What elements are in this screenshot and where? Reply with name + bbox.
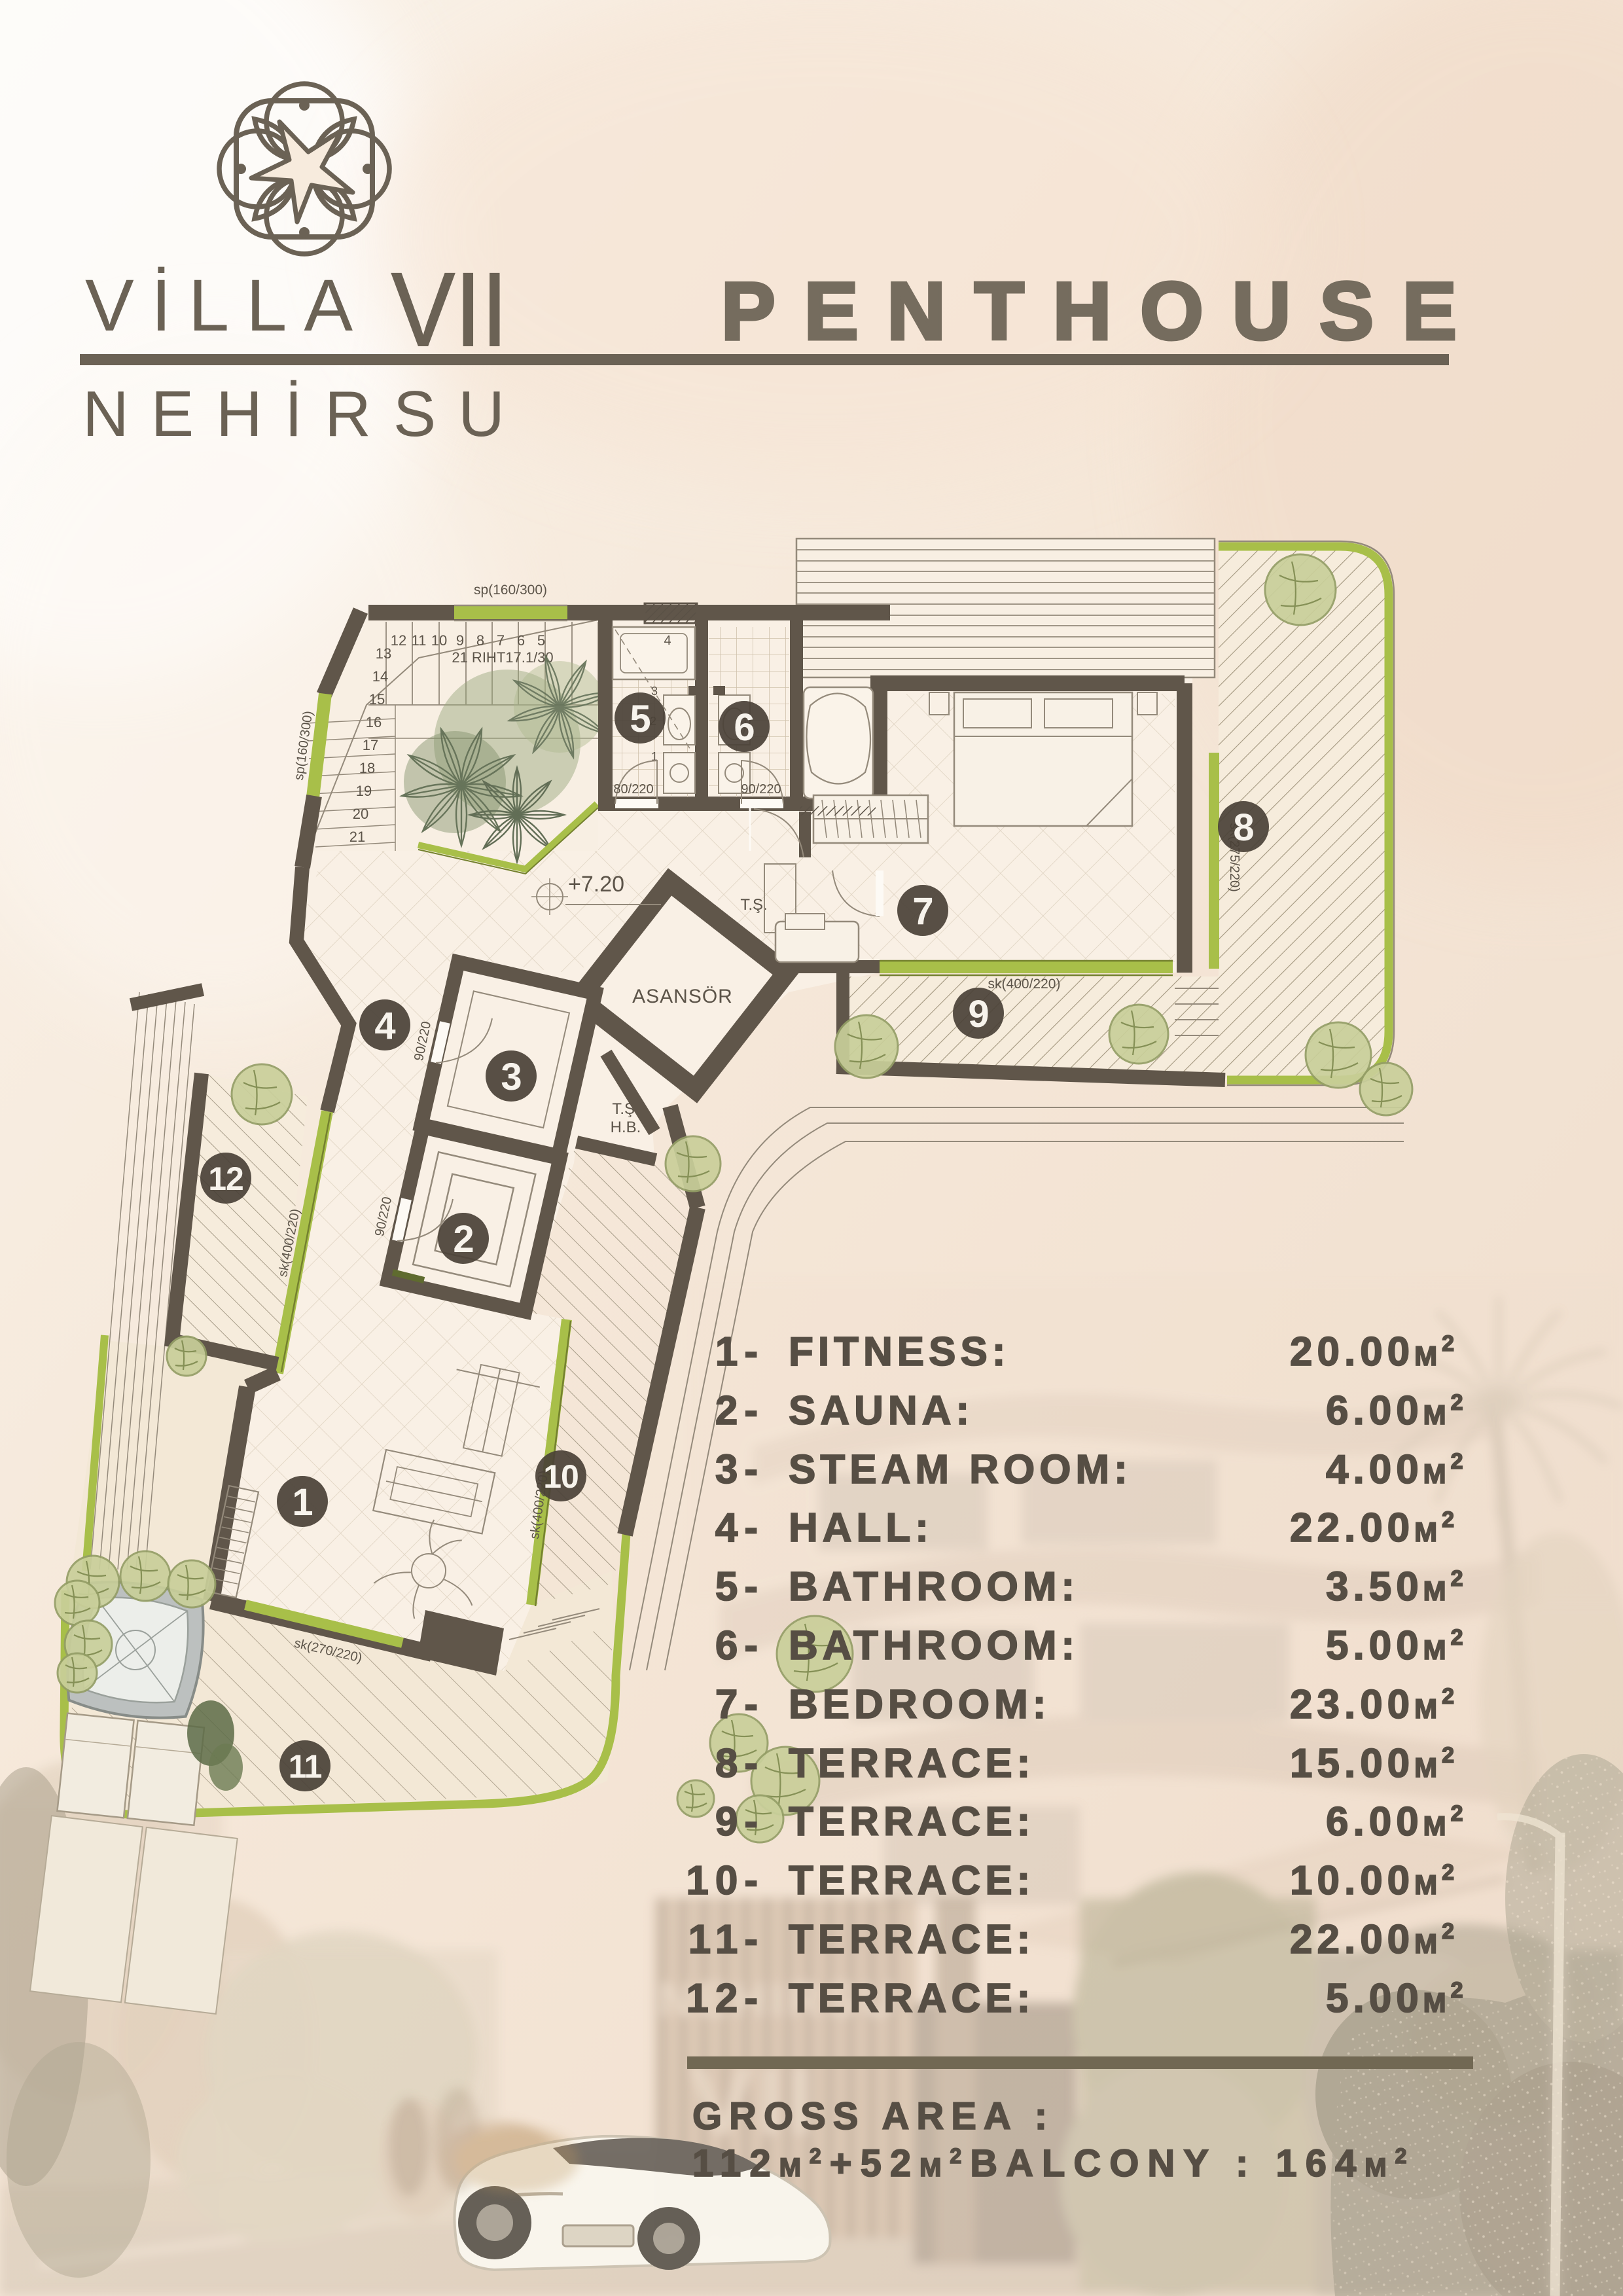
svg-text:9: 9 xyxy=(456,632,464,649)
svg-text:9-: 9- xyxy=(715,1799,764,1844)
svg-text:sp(160/300): sp(160/300) xyxy=(474,583,547,598)
svg-text:12: 12 xyxy=(208,1160,243,1197)
svg-text:GROSS AREA :: GROSS AREA : xyxy=(692,2095,1054,2138)
svg-text:HALL:: HALL: xyxy=(789,1505,933,1551)
svg-text:TERRACE:: TERRACE: xyxy=(789,1858,1035,1903)
svg-text:19: 19 xyxy=(356,783,372,799)
svg-text:7: 7 xyxy=(497,632,505,649)
svg-text:16: 16 xyxy=(366,714,382,730)
svg-text:ASANSÖR: ASANSÖR xyxy=(632,986,733,1007)
svg-text:20: 20 xyxy=(353,806,368,822)
svg-text:21 RIHT17.1/30: 21 RIHT17.1/30 xyxy=(452,649,553,666)
svg-text:2: 2 xyxy=(453,1218,473,1261)
svg-text:3: 3 xyxy=(501,1056,521,1098)
svg-text:90/220: 90/220 xyxy=(741,782,781,797)
svg-text:18: 18 xyxy=(359,760,375,776)
svg-text:TERRACE:: TERRACE: xyxy=(789,1976,1035,2021)
svg-text:T.Ş.: T.Ş. xyxy=(740,896,767,914)
svg-text:SAUNA:: SAUNA: xyxy=(789,1388,974,1433)
svg-text:VII: VII xyxy=(391,251,508,368)
svg-text:10: 10 xyxy=(543,1458,579,1495)
svg-text:2-: 2- xyxy=(715,1388,764,1433)
svg-text:1-: 1- xyxy=(715,1329,764,1374)
svg-text:9: 9 xyxy=(968,993,988,1035)
svg-text:STEAM ROOM:: STEAM ROOM: xyxy=(789,1447,1132,1492)
svg-text:12: 12 xyxy=(391,632,406,649)
svg-text:8: 8 xyxy=(476,632,484,649)
svg-text:11-: 11- xyxy=(688,1917,764,1962)
svg-text:1: 1 xyxy=(292,1481,312,1524)
svg-text:11: 11 xyxy=(412,632,427,649)
svg-text:sk(400/220): sk(400/220) xyxy=(988,977,1061,992)
svg-text:6: 6 xyxy=(734,706,754,749)
svg-text:NEHİRSU: NEHİRSU xyxy=(82,378,527,450)
svg-text:10: 10 xyxy=(431,632,447,649)
svg-text:BEDROOM:: BEDROOM: xyxy=(789,1682,1050,1727)
svg-text:6-: 6- xyxy=(715,1623,764,1668)
svg-text:TERRACE:: TERRACE: xyxy=(789,1917,1035,1962)
svg-text:TERRACE:: TERRACE: xyxy=(789,1799,1035,1844)
svg-text:FITNESS:: FITNESS: xyxy=(789,1329,1010,1374)
svg-text:3-: 3- xyxy=(715,1447,764,1492)
svg-text:12-: 12- xyxy=(686,1976,764,2021)
svg-text:4: 4 xyxy=(664,634,671,648)
svg-text:+7.20: +7.20 xyxy=(568,872,624,897)
svg-text:4: 4 xyxy=(374,1005,395,1047)
svg-text:8-: 8- xyxy=(715,1741,764,1786)
svg-text:BATHROOM:: BATHROOM: xyxy=(789,1623,1079,1668)
svg-text:8: 8 xyxy=(1233,806,1253,849)
svg-text:VİLLA: VİLLA xyxy=(85,264,370,346)
svg-text:5: 5 xyxy=(537,632,545,649)
svg-text:10-: 10- xyxy=(686,1858,764,1903)
svg-text:BATHROOM:: BATHROOM: xyxy=(789,1564,1079,1609)
svg-text:13: 13 xyxy=(376,645,391,662)
svg-text:4-: 4- xyxy=(715,1505,764,1551)
svg-text:7-: 7- xyxy=(715,1682,764,1727)
svg-text:14: 14 xyxy=(372,668,388,685)
svg-text:5-: 5- xyxy=(715,1564,764,1609)
svg-text:15: 15 xyxy=(369,691,385,708)
svg-text:21: 21 xyxy=(349,829,365,845)
svg-text:6: 6 xyxy=(517,632,525,649)
svg-text:11: 11 xyxy=(289,1748,322,1785)
svg-text:7: 7 xyxy=(912,890,933,933)
svg-text:PENTHOUSE: PENTHOUSE xyxy=(721,266,1486,357)
svg-text:H.B.: H.B. xyxy=(611,1119,641,1136)
svg-text:17: 17 xyxy=(363,737,378,753)
svg-text:80/220: 80/220 xyxy=(613,782,653,797)
svg-text:5: 5 xyxy=(630,698,650,740)
svg-text:TERRACE:: TERRACE: xyxy=(789,1741,1035,1786)
